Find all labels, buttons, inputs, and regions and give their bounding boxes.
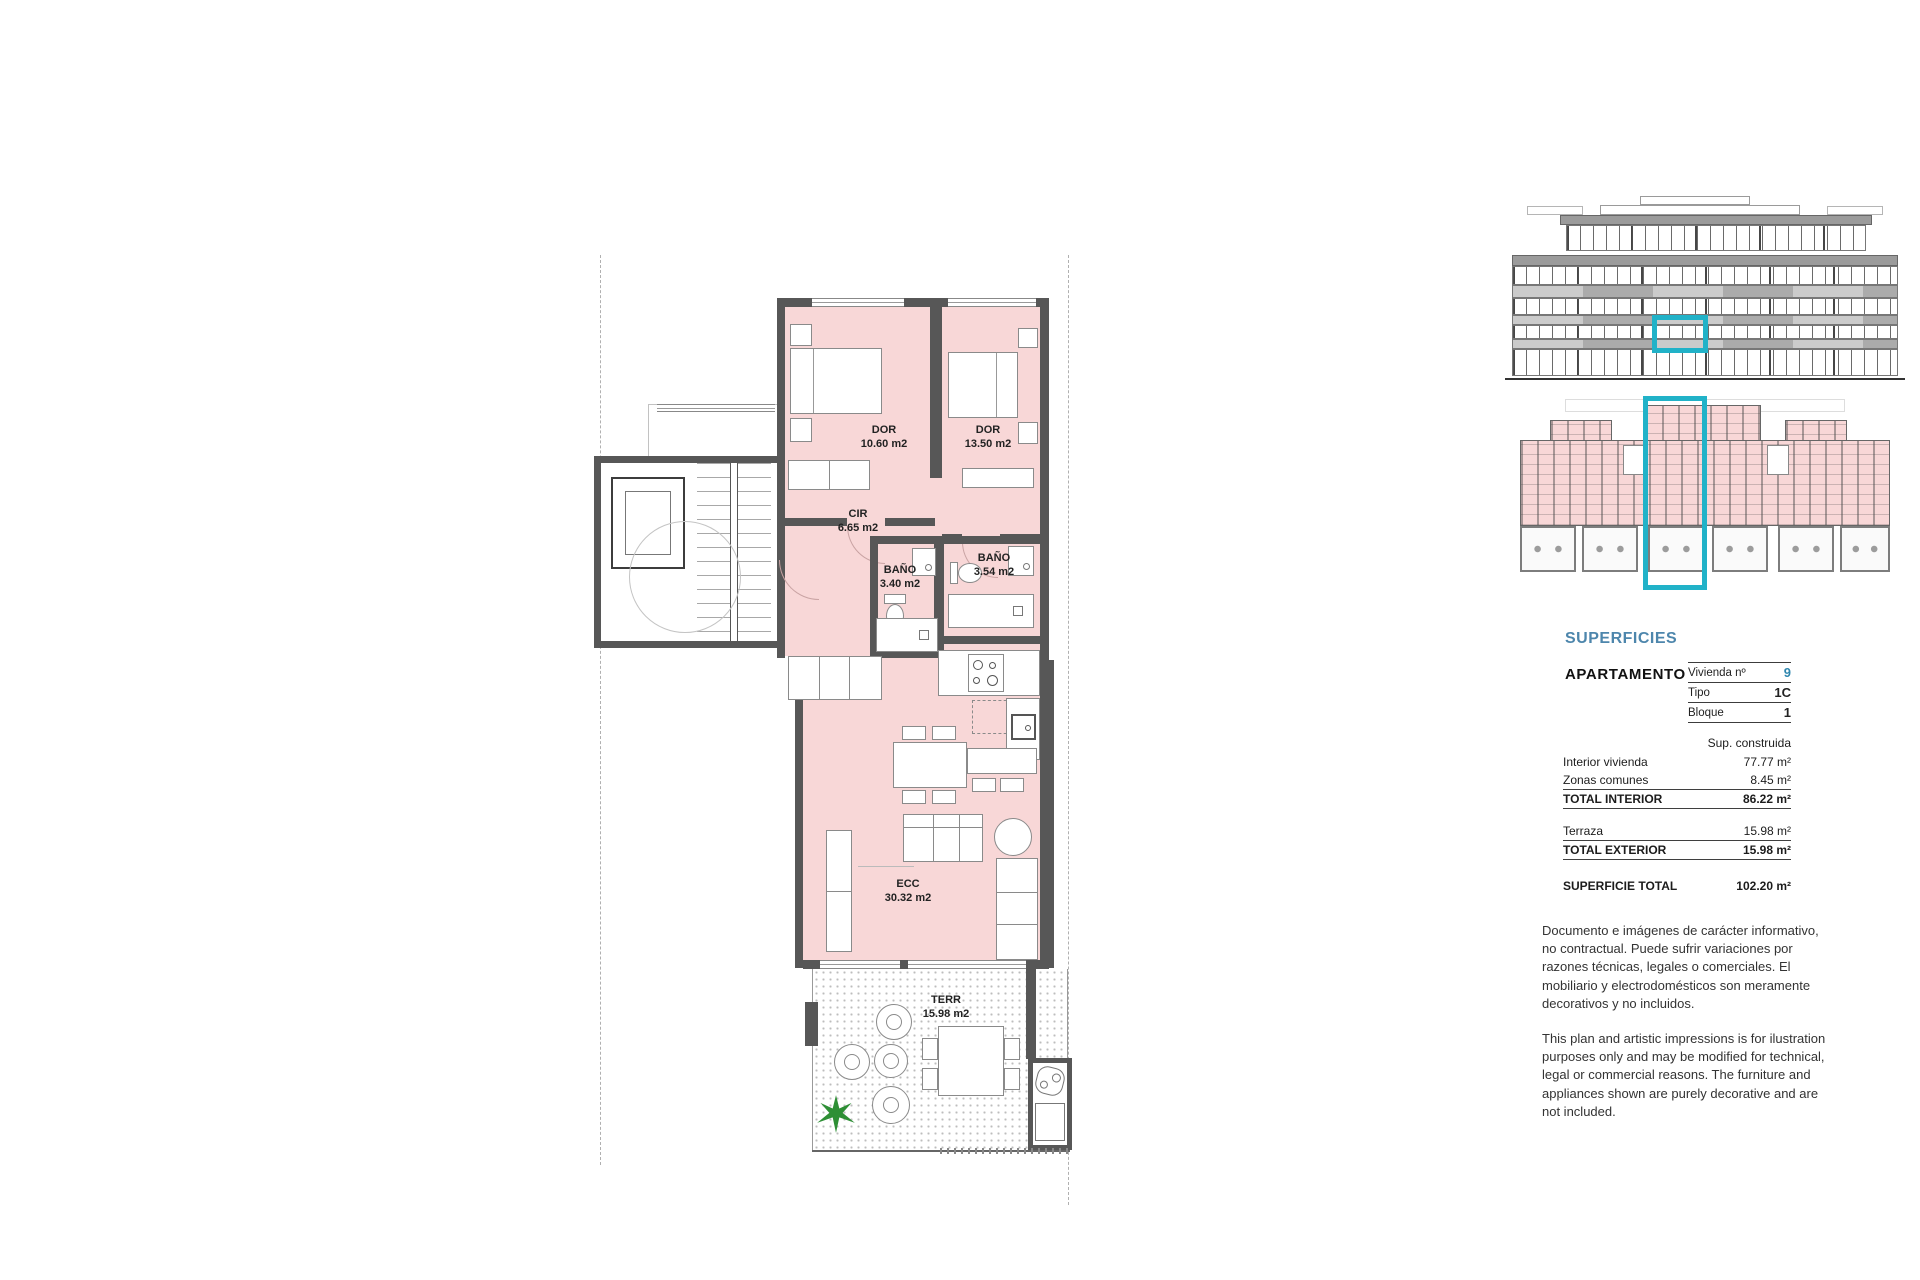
- surface-total-row: SUPERFICIE TOTAL 102.20 m²: [1563, 877, 1791, 895]
- surface-row-value: 86.22 m²: [1743, 792, 1791, 806]
- section-title: SUPERFICIES: [1565, 630, 1677, 648]
- plot-boundary-left: [600, 255, 601, 1165]
- surface-row-total-interior: TOTAL INTERIOR 86.22 m²: [1563, 790, 1791, 809]
- surface-total-value: 102.20 m²: [1736, 879, 1791, 893]
- wall-right-upper: [1040, 298, 1049, 660]
- penthouse-glazing: [1566, 225, 1866, 251]
- dining-chair: [932, 790, 956, 804]
- overview-stair-core: [1623, 445, 1645, 475]
- surface-row-label: TOTAL INTERIOR: [1563, 792, 1662, 806]
- unit-table-row: Vivienda nº 9: [1688, 663, 1791, 683]
- room-area: 3.54 m2: [974, 566, 1014, 580]
- room-name: TERR: [923, 994, 969, 1008]
- shower-drain: [919, 630, 929, 640]
- pillow-line: [996, 353, 997, 417]
- kitchen-island: [967, 748, 1037, 774]
- bathtub: [948, 594, 1034, 628]
- room-area: 30.32 m2: [885, 892, 931, 906]
- wall-bedroom1-bottom-b: [885, 518, 935, 526]
- unit-row-label: Tipo: [1688, 687, 1710, 699]
- toilet-tank: [884, 594, 906, 604]
- terrace-table-chair: [1004, 1068, 1020, 1090]
- surface-row: Interior vivienda 77.77 m²: [1563, 753, 1791, 771]
- overview-terrace: [1778, 526, 1834, 572]
- turning-circle: [629, 521, 741, 633]
- dining-chair: [902, 726, 926, 740]
- building-floorplan-overview: [1505, 395, 1905, 595]
- floor-slab: [1512, 255, 1898, 266]
- dining-chair: [902, 790, 926, 804]
- water-heater: [1033, 1064, 1067, 1098]
- surface-row-label: Interior vivienda: [1563, 755, 1648, 769]
- window: [657, 404, 775, 412]
- bedroom2-window: [948, 298, 1036, 307]
- basin-drain: [1023, 563, 1030, 570]
- terrace-wall-right: [1026, 969, 1036, 1059]
- terrace-chair: [872, 1086, 910, 1124]
- wardrobe: [788, 460, 870, 490]
- tub-drain: [1013, 606, 1023, 616]
- surface-table: Sup. construida Interior vivienda 77.77 …: [1563, 736, 1791, 895]
- spacer: [1563, 860, 1791, 877]
- room-label-bano2: BAÑO 3.54 m2: [974, 552, 1014, 580]
- dining-chair: [972, 778, 996, 792]
- stair-window-bay: [648, 404, 784, 458]
- nightstand: [1018, 328, 1038, 348]
- roof-structure: [1600, 205, 1800, 215]
- terrace-chair: [874, 1044, 908, 1078]
- room-name: BAÑO: [880, 564, 920, 578]
- unit-row-value: 1: [1784, 705, 1791, 720]
- overview-stair-core: [1767, 445, 1789, 475]
- balcony-band: [1512, 285, 1898, 298]
- ground-floor-glazing: [1512, 349, 1898, 376]
- surface-row: Zonas comunes 8.45 m²: [1563, 771, 1791, 790]
- bed-double: [948, 352, 1018, 418]
- plant-icon: [816, 1094, 856, 1134]
- unit-table-row: Tipo 1C: [1688, 683, 1791, 703]
- stove: [968, 654, 1004, 692]
- nightstand: [790, 324, 812, 346]
- terrace-table-chair: [922, 1068, 938, 1090]
- terrace-chair: [876, 1004, 912, 1040]
- floorplan-sheet: DOR 10.60 m2 DOR 13.50 m2 CIR 6.65 m2 BA…: [0, 0, 1920, 1280]
- bed-double: [790, 348, 882, 414]
- surface-total-label: SUPERFICIE TOTAL: [1563, 879, 1677, 893]
- wall-bedroom-divider: [930, 306, 942, 478]
- wall-left: [777, 298, 785, 658]
- basin-drain: [925, 564, 932, 571]
- room-label-dor1: DOR 10.60 m2: [861, 424, 907, 452]
- heater-dial: [1039, 1080, 1049, 1090]
- burner: [989, 662, 996, 669]
- room-area: 3.40 m2: [880, 578, 920, 592]
- roof-structure: [1640, 196, 1750, 205]
- unit-table: Vivienda nº 9 Tipo 1C Bloque 1: [1688, 662, 1791, 723]
- dining-chair: [1000, 778, 1024, 792]
- unit-row-value: 9: [1784, 665, 1791, 680]
- overview-terrace: [1582, 526, 1638, 572]
- terrace-edge-ticks: [940, 1148, 1068, 1154]
- overview-terrace: [1520, 526, 1576, 572]
- room-label-terr: TERR 15.98 m2: [923, 994, 969, 1022]
- nightstand: [790, 418, 812, 442]
- dining-chair: [932, 726, 956, 740]
- unit-table-row: Bloque 1: [1688, 703, 1791, 723]
- burner: [987, 675, 998, 686]
- surface-row: Terraza 15.98 m²: [1563, 822, 1791, 841]
- utility-unit: [1035, 1103, 1065, 1141]
- dining-table: [893, 742, 967, 788]
- floor-glazing: [1512, 298, 1898, 315]
- terrace-door-glazing-a: [820, 960, 900, 969]
- room-area: 15.98 m2: [923, 1008, 969, 1022]
- penthouse-slab: [1560, 215, 1872, 225]
- chair-seat: [886, 1014, 902, 1030]
- surface-row-value: 77.77 m²: [1744, 755, 1791, 769]
- nightstand: [1018, 422, 1038, 444]
- ground-line: [1505, 378, 1905, 380]
- wall-bath2-top: [944, 536, 1040, 544]
- terrace-table-chair: [1004, 1038, 1020, 1060]
- room-area: 6.65 m2: [838, 522, 878, 536]
- surface-row-label: Zonas comunes: [1563, 773, 1648, 787]
- wardrobe: [962, 468, 1034, 488]
- surface-table-header: Sup. construida: [1563, 736, 1791, 753]
- wall-bath1-top: [870, 536, 942, 544]
- room-name: DOR: [861, 424, 907, 438]
- disclaimer-english: This plan and artistic impressions is fo…: [1542, 1030, 1836, 1121]
- shower-tray: [876, 618, 938, 652]
- armchair-round: [994, 818, 1032, 856]
- terrace-table: [938, 1026, 1004, 1096]
- chair-seat: [883, 1097, 899, 1113]
- surface-row-value: 15.98 m²: [1744, 824, 1791, 838]
- media-unit: [996, 858, 1038, 960]
- terrace-pillar: [805, 1002, 818, 1046]
- overview-terrace: [1712, 526, 1768, 572]
- kitchen-cabinets: [788, 656, 882, 700]
- surface-row-value: 15.98 m²: [1743, 843, 1791, 857]
- spacer: [1563, 809, 1791, 822]
- unit-row-label: Vivienda nº: [1688, 667, 1746, 679]
- terrace-door-glazing-b: [908, 960, 1026, 969]
- room-name: DOR: [965, 424, 1011, 438]
- room-name: ECC: [885, 878, 931, 892]
- overview-terrace: [1840, 526, 1890, 572]
- terrace-chair: [834, 1044, 870, 1080]
- room-area: 10.60 m2: [861, 438, 907, 452]
- room-label-bano1: BAÑO 3.40 m2: [880, 564, 920, 592]
- communal-core: [594, 456, 784, 648]
- unit-highlight-elevation: [1652, 315, 1708, 353]
- wall-bath2-bottom: [944, 636, 1040, 644]
- surface-row-label: Terraza: [1563, 824, 1603, 838]
- surface-row-value: 8.45 m²: [1750, 773, 1791, 787]
- room-name: BAÑO: [974, 552, 1014, 566]
- wall-living-left: [795, 656, 803, 968]
- apartment-label: APARTAMENTO: [1565, 666, 1686, 683]
- kitchen-sink: [1011, 714, 1036, 740]
- sink-drain: [1025, 725, 1031, 731]
- floor-glazing: [1512, 266, 1898, 285]
- toilet-tank: [950, 562, 958, 584]
- room-label-dor2: DOR 13.50 m2: [965, 424, 1011, 452]
- pillow-line: [813, 349, 814, 413]
- room-label-ecc: ECC 30.32 m2: [885, 878, 931, 906]
- terrace-table-chair: [922, 1038, 938, 1060]
- sofa: [903, 814, 983, 862]
- disclaimer-spanish: Documento e imágenes de carácter informa…: [1542, 922, 1836, 1013]
- bedroom1-window: [812, 298, 904, 307]
- rug-line: [858, 866, 914, 867]
- chair-seat: [883, 1053, 899, 1069]
- utility-closet: [1028, 1058, 1072, 1150]
- unit-row-label: Bloque: [1688, 707, 1724, 719]
- wall-right-lower: [1040, 660, 1054, 968]
- unit-highlight-siteplan: [1643, 396, 1707, 590]
- room-area: 13.50 m2: [965, 438, 1011, 452]
- chair-seat: [844, 1054, 860, 1070]
- burner: [973, 677, 980, 684]
- room-name: CIR: [838, 508, 878, 522]
- roof-railing: [1527, 206, 1583, 215]
- room-label-cir: CIR 6.65 m2: [838, 508, 878, 536]
- heater-dial: [1051, 1073, 1062, 1084]
- sideboard: [826, 830, 852, 952]
- unit-row-value: 1C: [1774, 685, 1791, 700]
- surface-row-label: TOTAL EXTERIOR: [1563, 843, 1666, 857]
- building-elevation: [1505, 192, 1905, 384]
- roof-railing: [1827, 206, 1883, 215]
- burner: [973, 660, 983, 670]
- surface-row-total-exterior: TOTAL EXTERIOR 15.98 m²: [1563, 841, 1791, 860]
